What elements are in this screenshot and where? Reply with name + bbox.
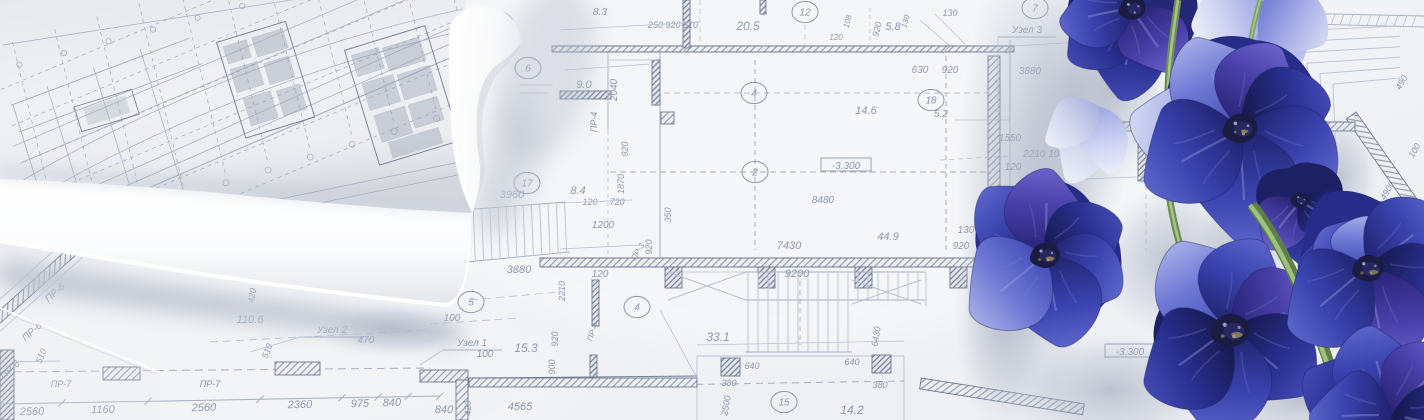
svg-text:640: 640 xyxy=(744,361,759,371)
svg-text:33.1: 33.1 xyxy=(706,330,729,344)
svg-text:900: 900 xyxy=(547,359,557,374)
svg-text:2040: 2040 xyxy=(609,78,620,102)
svg-text:12: 12 xyxy=(799,8,811,19)
svg-text:8.4: 8.4 xyxy=(570,185,585,197)
svg-text:8480: 8480 xyxy=(812,195,835,206)
svg-text:-3.300: -3.300 xyxy=(832,161,861,172)
svg-text:18: 18 xyxy=(925,96,937,107)
svg-text:120: 120 xyxy=(592,269,609,280)
svg-text:2: 2 xyxy=(751,168,758,179)
svg-text:4: 4 xyxy=(751,89,757,100)
svg-text:840: 840 xyxy=(383,397,402,409)
svg-text:100: 100 xyxy=(477,349,494,360)
svg-text:15.3: 15.3 xyxy=(514,341,538,355)
svg-text:2360: 2360 xyxy=(287,399,314,412)
svg-text:14.2: 14.2 xyxy=(840,403,864,417)
svg-text:ПР-7: ПР-7 xyxy=(200,379,222,389)
svg-text:9200: 9200 xyxy=(785,268,810,280)
svg-text:4: 4 xyxy=(634,303,640,314)
svg-text:975: 975 xyxy=(351,398,370,410)
svg-text:720: 720 xyxy=(609,197,624,207)
svg-text:7430: 7430 xyxy=(777,240,802,252)
svg-text:920: 920 xyxy=(620,141,630,156)
svg-text:8.3: 8.3 xyxy=(593,7,607,18)
svg-text:1200: 1200 xyxy=(592,220,615,231)
svg-text:ПР-4: ПР-4 xyxy=(589,112,599,133)
svg-text:250 920 510: 250 920 510 xyxy=(647,20,698,30)
svg-text:840: 840 xyxy=(435,404,454,416)
svg-text:120: 120 xyxy=(829,33,843,42)
svg-text:920: 920 xyxy=(942,65,959,76)
svg-text:2210: 2210 xyxy=(557,281,567,302)
svg-text:3880: 3880 xyxy=(507,264,532,276)
svg-text:44.9: 44.9 xyxy=(877,231,898,243)
svg-text:350: 350 xyxy=(663,207,673,222)
svg-text:1870: 1870 xyxy=(616,174,626,194)
svg-text:5.2: 5.2 xyxy=(934,109,948,120)
svg-text:640: 640 xyxy=(844,357,859,367)
svg-text:380: 380 xyxy=(872,380,887,390)
svg-text:20.5: 20.5 xyxy=(735,19,760,33)
svg-text:5: 5 xyxy=(468,298,474,309)
svg-text:14.6: 14.6 xyxy=(855,105,877,117)
svg-text:130: 130 xyxy=(942,8,957,18)
svg-text:420: 420 xyxy=(463,400,473,415)
svg-text:630: 630 xyxy=(912,65,929,76)
svg-text:920: 920 xyxy=(550,331,560,346)
svg-text:380: 380 xyxy=(721,378,736,388)
svg-text:2560: 2560 xyxy=(191,402,218,415)
svg-text:4565: 4565 xyxy=(508,401,533,413)
svg-text:15: 15 xyxy=(778,398,790,409)
